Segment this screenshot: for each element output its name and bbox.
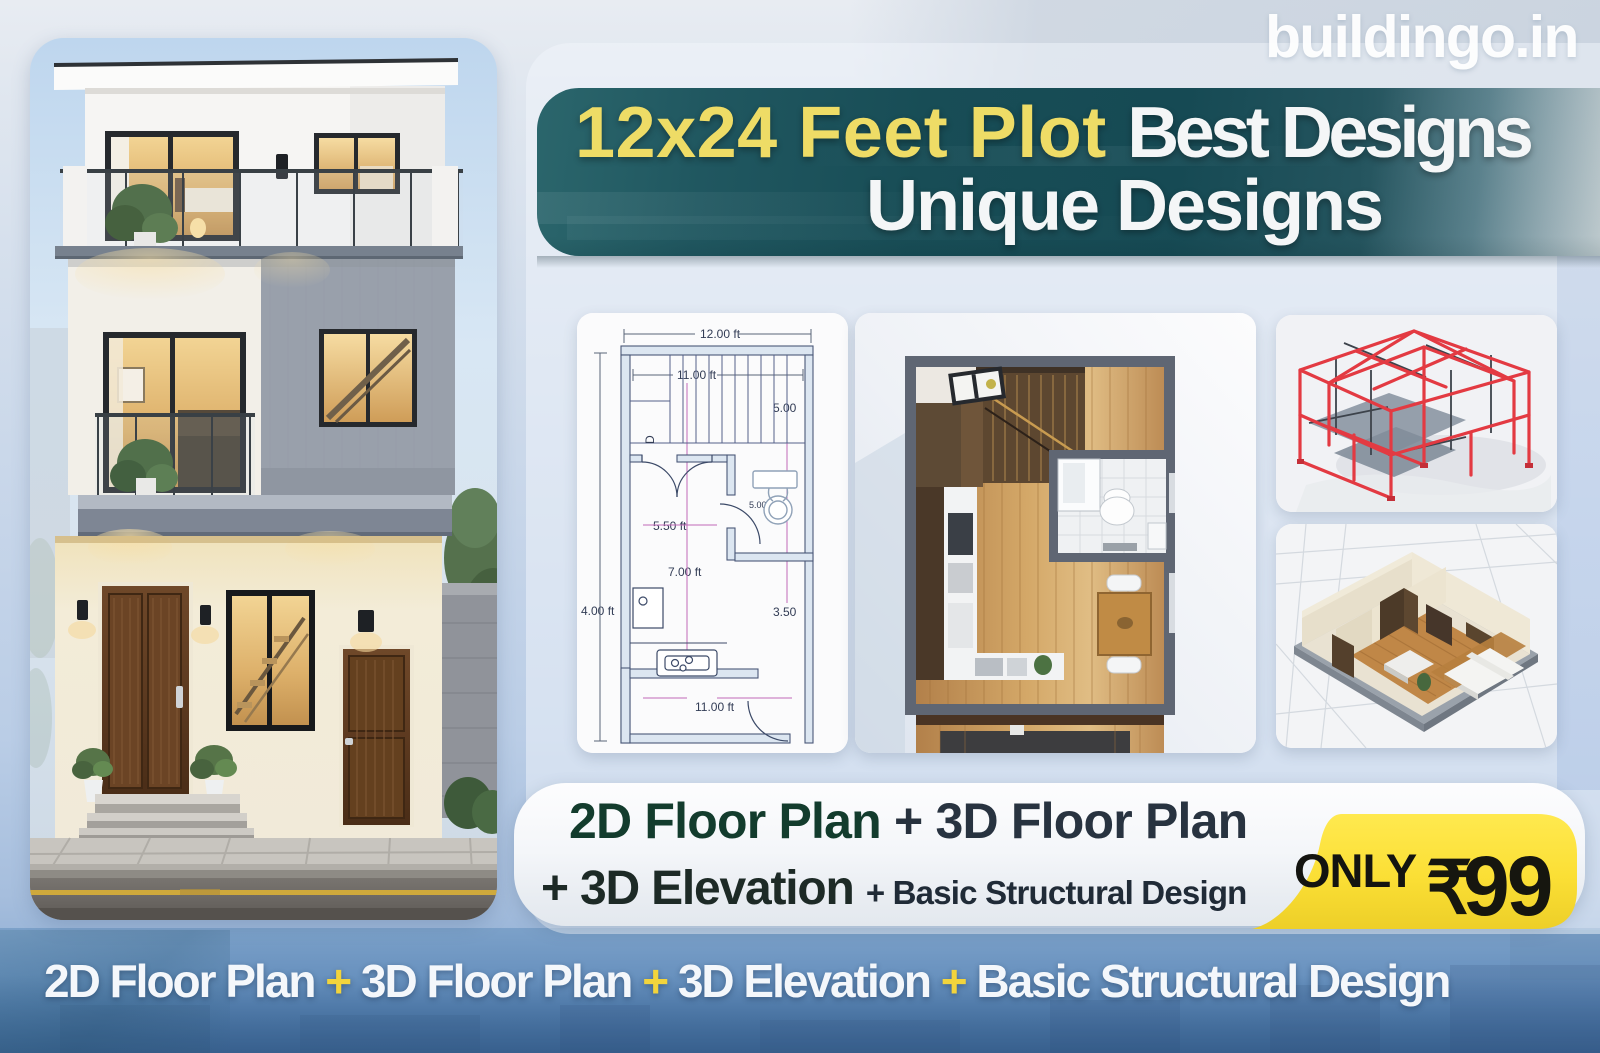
- svg-text:5.50 ft: 5.50 ft: [653, 519, 687, 533]
- svg-text:3.50: 3.50: [773, 605, 797, 619]
- svg-text:99: 99: [1463, 839, 1551, 933]
- svg-text:ONLY: ONLY: [1294, 844, 1417, 897]
- svg-text:12.00 ft: 12.00 ft: [700, 327, 741, 341]
- svg-text:5.00: 5.00: [773, 401, 797, 415]
- svg-text:7.00 ft: 7.00 ft: [668, 565, 702, 579]
- svg-text:4.00 ft: 4.00 ft: [581, 604, 615, 618]
- svg-text:11.00 ft: 11.00 ft: [695, 700, 735, 714]
- svg-text:D: D: [643, 435, 657, 444]
